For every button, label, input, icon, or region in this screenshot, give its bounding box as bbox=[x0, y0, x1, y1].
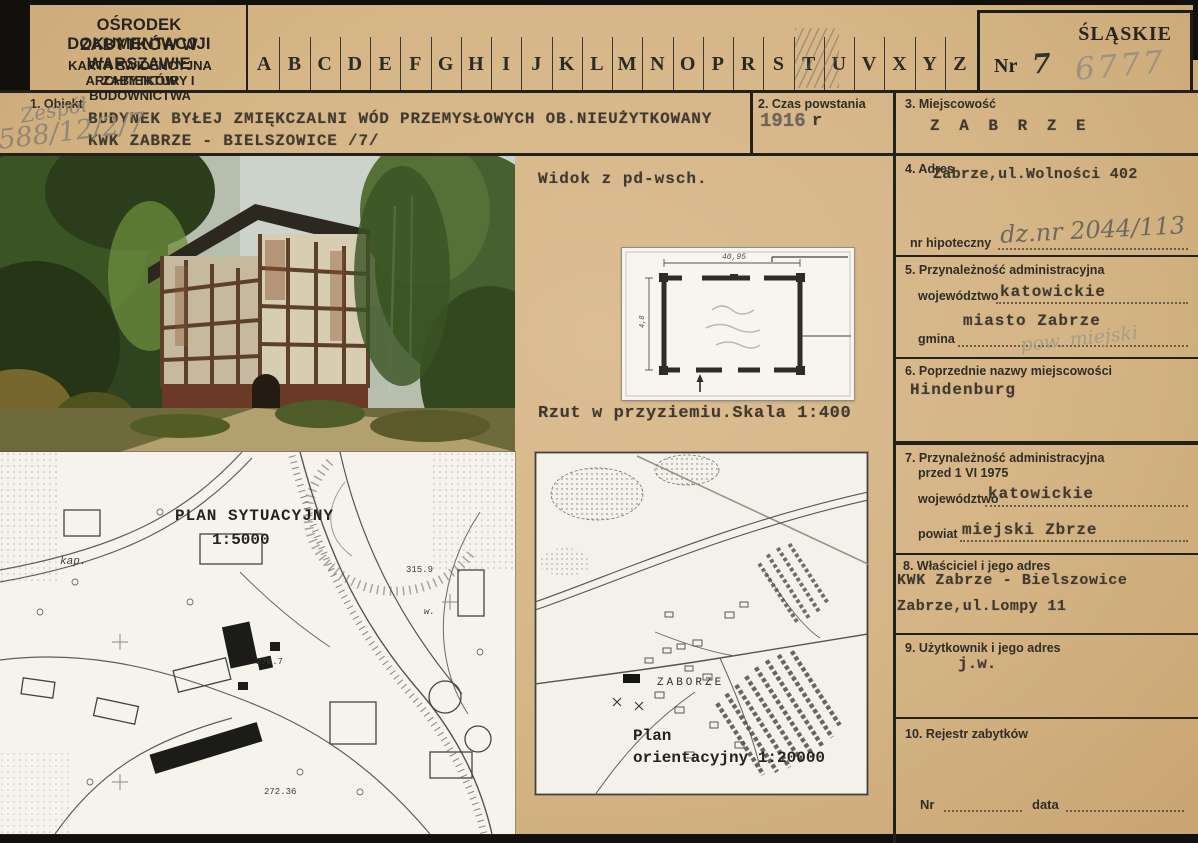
alphabet-letter: F bbox=[400, 5, 430, 90]
inventory-number-pencil: 6777 bbox=[1074, 44, 1168, 88]
s10-nr-line bbox=[944, 808, 1022, 812]
region-number-box: ŚLĄSKIE Nr 7 6777 bbox=[977, 10, 1193, 93]
scan-edge-right bbox=[1193, 0, 1198, 60]
situational-map-drawing: PLAN SYTUACYJNY 1:5000 kap. 315.9 270.7 … bbox=[0, 452, 515, 834]
pencil-hatch-mark bbox=[795, 28, 839, 88]
nr-value-handwritten: 7 bbox=[1031, 49, 1051, 81]
alphabet-letter: H bbox=[461, 5, 491, 90]
orientation-map-title-line1: Plan bbox=[633, 727, 671, 745]
s3-town: Z A B R Z E bbox=[930, 117, 1091, 135]
alphabet-letter: C bbox=[310, 5, 340, 90]
rule-s9 bbox=[893, 717, 1198, 719]
s8-owner-line1: KWK Zabrze - Bielszowice bbox=[897, 572, 1127, 589]
orientation-map-drawing: ZABORZE Plan orientacyjny 1:20000 bbox=[535, 452, 868, 795]
s9-value: j.w. bbox=[958, 655, 996, 673]
nr-label: Nr bbox=[994, 55, 1017, 78]
s5-wojewodztwo-label: województwo bbox=[918, 289, 999, 303]
s2-label: 2. Czas powstania bbox=[758, 97, 866, 111]
alphabet-letter: D bbox=[340, 5, 370, 90]
map-label-kap: kap. bbox=[60, 556, 86, 568]
alphabet-letter: A bbox=[249, 5, 279, 90]
alphabet-letter: O bbox=[673, 5, 703, 90]
alphabet-letter: R bbox=[733, 5, 763, 90]
alphabet-letter: Z bbox=[945, 5, 975, 90]
alphabet-letter: B bbox=[279, 5, 309, 90]
situational-map-title: PLAN SYTUACYJNY bbox=[175, 507, 334, 525]
s7-label-line1: 7. Przynależność administracyjna bbox=[905, 451, 1104, 465]
alphabet-letter: V bbox=[854, 5, 884, 90]
subject-building-marker bbox=[623, 674, 640, 683]
situational-map: PLAN SYTUACYJNY 1:5000 kap. 315.9 270.7 … bbox=[0, 452, 515, 834]
alphabet-strip: ABCDEFGHIJKLMNOPRSTUVXYZ bbox=[249, 5, 975, 90]
alphabet-letter: J bbox=[521, 5, 551, 90]
s5-label: 5. Przynależność administracyjna bbox=[905, 263, 1104, 277]
alphabet-letter: K bbox=[552, 5, 582, 90]
s7-powiat-label: powiat bbox=[918, 527, 958, 541]
scan-edge-bottom bbox=[0, 834, 1198, 843]
s4-hipoteczny-label: nr hipoteczny bbox=[910, 236, 991, 250]
s8-owner-line2: Zabrze,ul.Lompy 11 bbox=[897, 598, 1066, 615]
rule-s5 bbox=[893, 357, 1198, 359]
rule-org-divider bbox=[246, 5, 248, 90]
rule-main-column bbox=[893, 90, 896, 843]
s4-address: Zabrze,ul.Wolności 402 bbox=[933, 166, 1138, 183]
orientation-map-title-line2: orientacyjny 1:20000 bbox=[633, 749, 825, 767]
map-label-height-272: 272.36 bbox=[264, 787, 296, 797]
alphabet-letter: S bbox=[763, 5, 793, 90]
s6-label: 6. Poprzednie nazwy miejscowości bbox=[905, 364, 1112, 378]
map-label-height-315: 315.9 bbox=[406, 565, 433, 575]
s8-label: 8. Właściciel i jego adres bbox=[903, 559, 1050, 573]
rule-s4 bbox=[893, 255, 1198, 257]
rule-s6 bbox=[893, 441, 1198, 445]
s7-powiat-line bbox=[960, 538, 1188, 542]
s7-wojewodztwo-line bbox=[985, 503, 1188, 507]
orientation-map: ZABORZE Plan orientacyjny 1:20000 bbox=[535, 452, 868, 795]
alphabet-letter: Y bbox=[915, 5, 945, 90]
alphabet-letter: N bbox=[642, 5, 672, 90]
photo-image bbox=[0, 156, 515, 452]
alphabet-letter: G bbox=[431, 5, 461, 90]
rule-s7 bbox=[893, 553, 1198, 555]
s5-gmina-label: gmina bbox=[918, 332, 955, 346]
s9-label: 9. Użytkownik i jego adres bbox=[905, 641, 1061, 655]
situational-map-scale: 1:5000 bbox=[212, 531, 270, 549]
plan-dim-left: 4,8 bbox=[639, 315, 647, 328]
s2-year: 1916 bbox=[760, 110, 806, 132]
s3-label: 3. Miejscowość bbox=[905, 97, 996, 111]
s4-hipoteczny-value: dz.nr 2044/113 bbox=[999, 211, 1185, 249]
s5-wojewodztwo-line bbox=[996, 300, 1188, 304]
s5-wojewodztwo-value: katowickie bbox=[1000, 283, 1106, 301]
floor-plan-card: 40,95 4,8 bbox=[622, 248, 854, 400]
map-label-height-270: 270.7 bbox=[256, 657, 283, 667]
s10-data-label: data bbox=[1032, 797, 1059, 812]
alphabet-letter: E bbox=[370, 5, 400, 90]
s10-label: 10. Rejestr zabytków bbox=[905, 727, 1028, 741]
s7-powiat-value: miejski Zbrze bbox=[962, 521, 1097, 539]
s6-value: Hindenburg bbox=[910, 381, 1016, 399]
floor-plan-drawing: 40,95 4,8 bbox=[622, 248, 854, 400]
map-label-w: w. bbox=[424, 607, 435, 617]
plan-dim-top: 40,95 bbox=[722, 253, 746, 262]
heritage-card: OŚRODEK DOKUMENTACJJI ZABYTKÓW W WARSZAW… bbox=[0, 0, 1198, 843]
plan-caption: Rzut w przyziemiu.Skala 1:400 bbox=[538, 404, 851, 423]
building-photograph bbox=[0, 156, 515, 452]
s7-wojewodztwo-value: katowickie bbox=[988, 485, 1094, 503]
alphabet-letter: L bbox=[582, 5, 612, 90]
region-name: ŚLĄSKIE bbox=[1078, 23, 1172, 46]
alphabet-letter: M bbox=[612, 5, 642, 90]
alphabet-letter: P bbox=[703, 5, 733, 90]
photo-caption: Widok z pd-wsch. bbox=[538, 170, 708, 188]
alphabet-letter: X bbox=[884, 5, 914, 90]
rule-header bbox=[0, 90, 1198, 93]
map-label-zaborze: ZABORZE bbox=[657, 677, 724, 689]
rule-s1-s2 bbox=[750, 90, 753, 153]
s1-object-line1: BUDYNEK BYŁEJ ZMIĘKCZALNI WÓD PRZEMYSŁOW… bbox=[88, 110, 712, 128]
s10-data-line bbox=[1066, 808, 1184, 812]
scan-edge-corner bbox=[0, 0, 30, 92]
s7-label-line2: przed 1 VI 1975 bbox=[918, 466, 1008, 480]
alphabet-letter: I bbox=[491, 5, 521, 90]
rule-s8 bbox=[893, 633, 1198, 635]
s10-nr-label: Nr bbox=[920, 797, 934, 812]
s2-year-suffix: r bbox=[812, 112, 822, 131]
